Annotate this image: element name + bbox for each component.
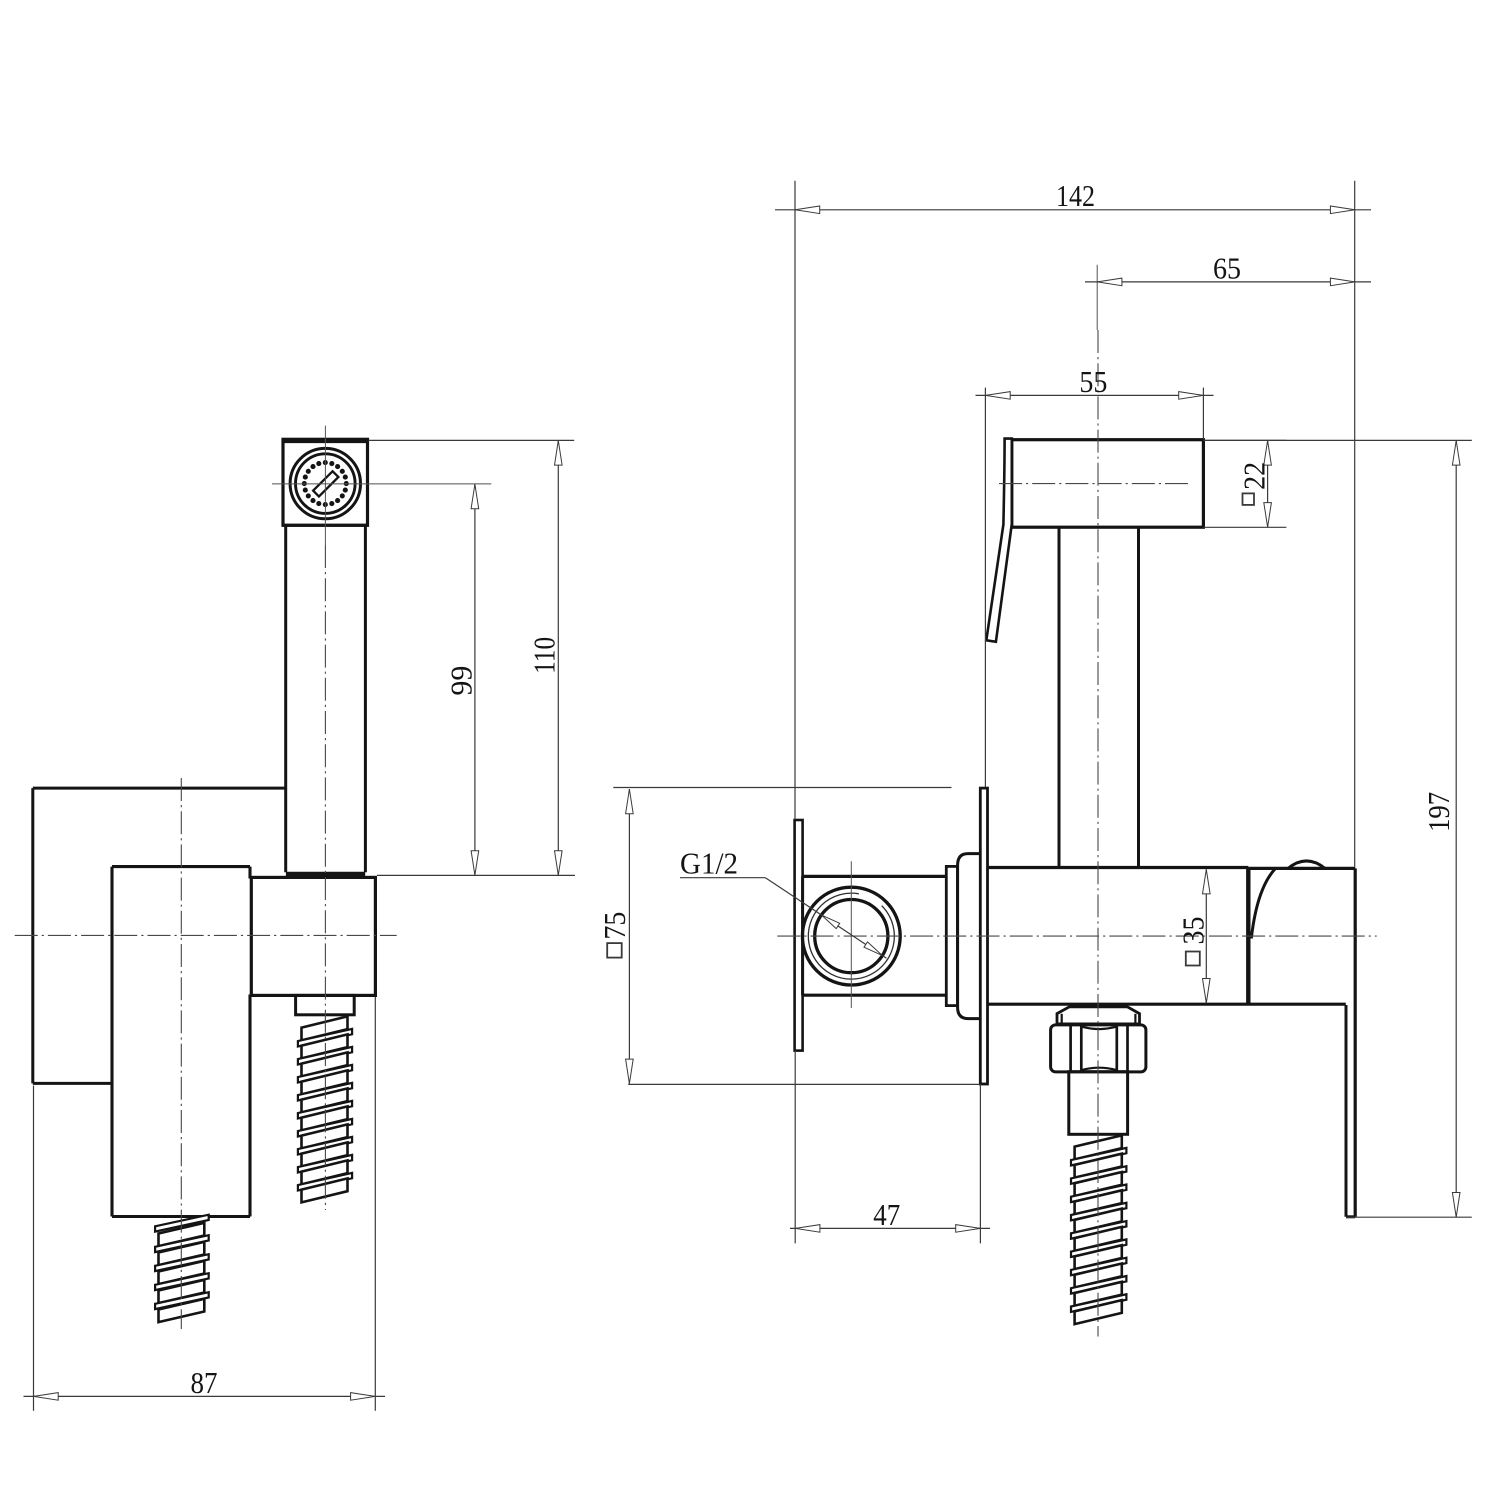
svg-text:65: 65	[1213, 250, 1241, 285]
svg-text:22: 22	[1237, 462, 1272, 490]
svg-text:87: 87	[191, 1365, 218, 1400]
svg-text:142: 142	[1056, 178, 1095, 213]
svg-text:99: 99	[443, 666, 478, 696]
svg-text:35: 35	[1175, 917, 1210, 945]
svg-text:47: 47	[873, 1197, 900, 1232]
svg-text:75: 75	[597, 912, 632, 940]
svg-text:197: 197	[1421, 792, 1456, 832]
svg-text:110: 110	[527, 637, 562, 674]
svg-text:55: 55	[1079, 364, 1107, 399]
svg-text:G1/2: G1/2	[680, 846, 738, 881]
